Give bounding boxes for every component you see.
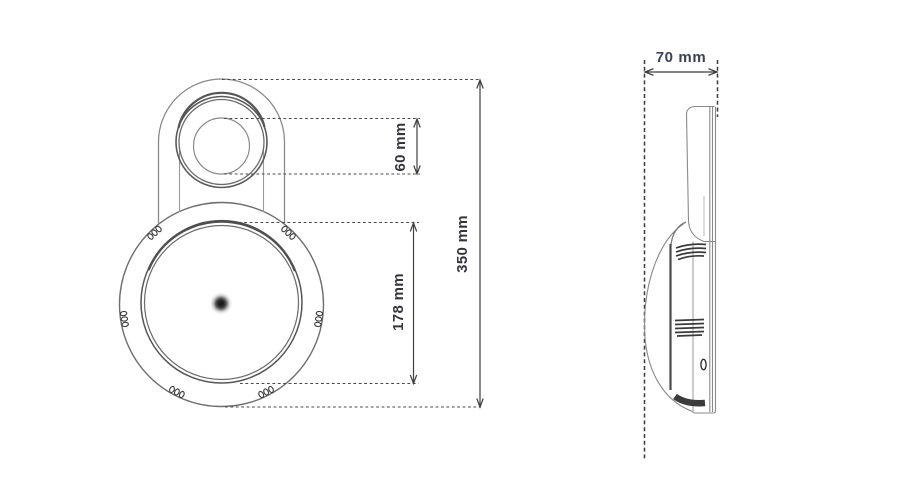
svg-text:178 mm: 178 mm bbox=[390, 273, 407, 331]
svg-text:350 mm: 350 mm bbox=[454, 215, 471, 273]
svg-text:60 mm: 60 mm bbox=[392, 122, 409, 171]
svg-text:70 mm: 70 mm bbox=[656, 49, 707, 66]
